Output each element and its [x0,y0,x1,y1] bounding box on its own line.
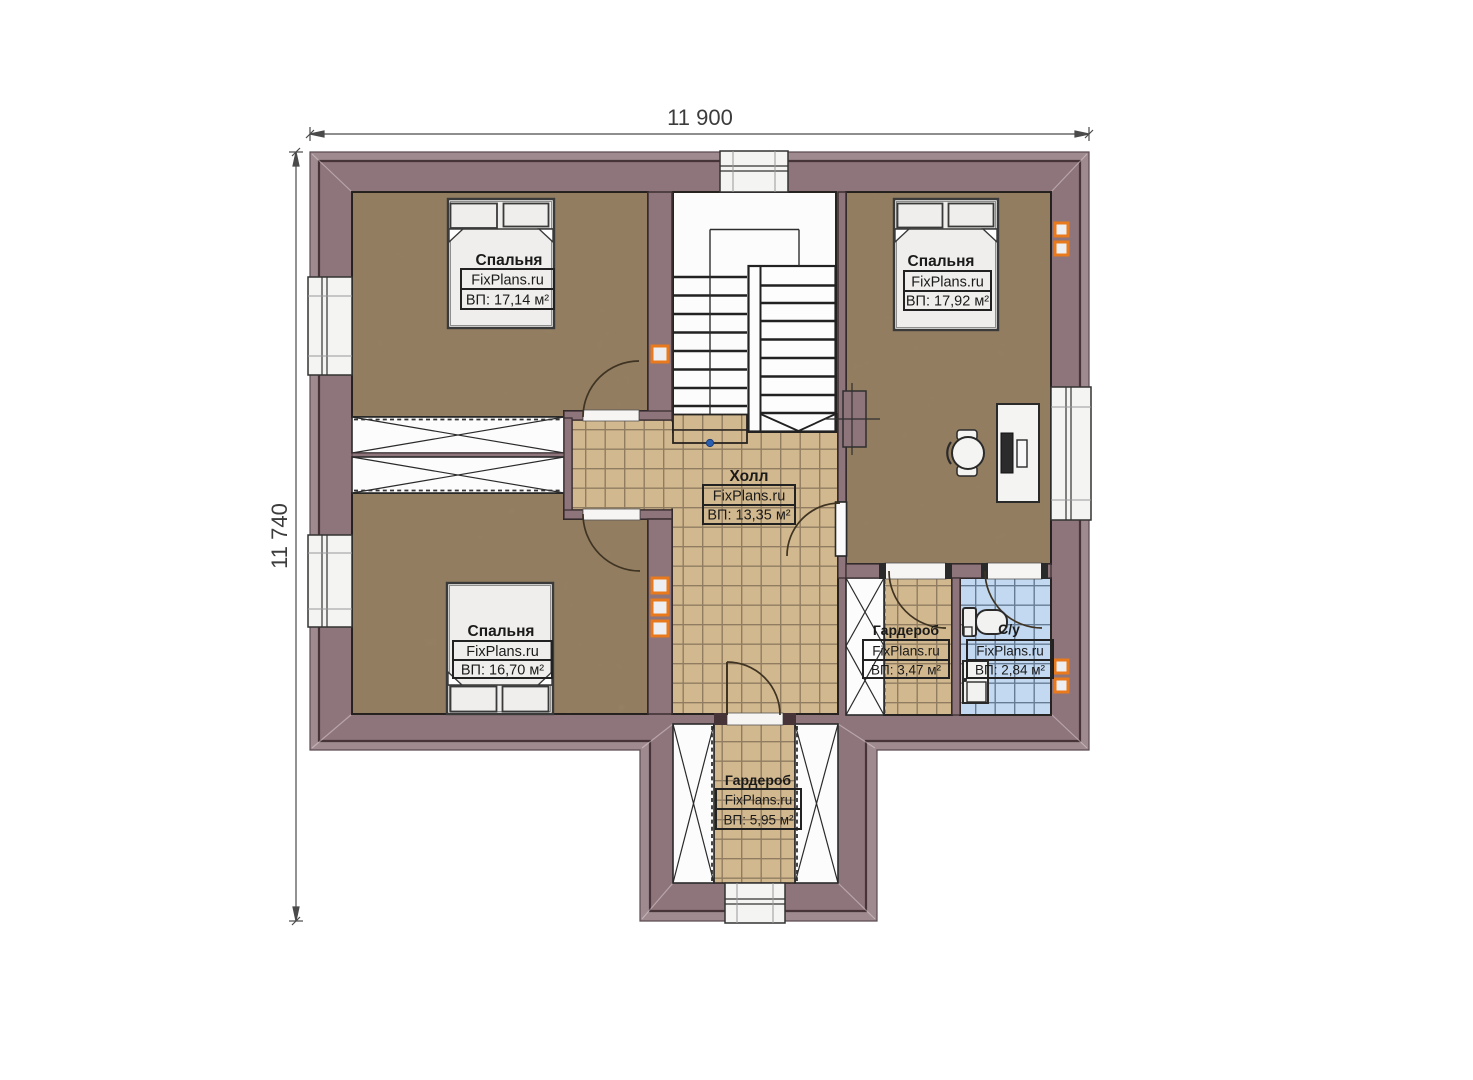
svg-text:ВП: 16,70 м²: ВП: 16,70 м² [461,663,544,679]
svg-text:FixPlans.ru: FixPlans.ru [911,275,984,291]
svg-text:Спальня: Спальня [468,623,535,640]
svg-text:Гардероб: Гардероб [725,772,792,788]
svg-text:ВП: 17,14 м²: ВП: 17,14 м² [466,293,549,309]
svg-text:ВП: 13,35 м²: ВП: 13,35 м² [707,508,790,524]
svg-text:FixPlans.ru: FixPlans.ru [976,644,1044,659]
svg-text:Холл: Холл [730,468,769,485]
svg-text:FixPlans.ru: FixPlans.ru [466,644,539,660]
svg-text:11 740: 11 740 [267,503,292,569]
svg-text:11 900: 11 900 [667,105,733,130]
svg-text:FixPlans.ru: FixPlans.ru [471,273,544,289]
svg-text:FixPlans.ru: FixPlans.ru [872,644,940,659]
svg-text:ВП: 5,95 м²: ВП: 5,95 м² [723,813,794,828]
svg-text:ВП: 2,84 м²: ВП: 2,84 м² [975,663,1046,678]
svg-text:Спальня: Спальня [908,253,975,270]
svg-text:FixPlans.ru: FixPlans.ru [725,793,793,808]
svg-text:С/у: С/у [998,621,1020,637]
svg-text:Гардероб: Гардероб [873,622,940,638]
svg-text:FixPlans.ru: FixPlans.ru [713,489,786,505]
svg-text:Спальня: Спальня [476,252,543,269]
svg-text:ВП: 17,92 м²: ВП: 17,92 м² [906,294,989,310]
svg-text:ВП: 3,47 м²: ВП: 3,47 м² [871,663,942,678]
